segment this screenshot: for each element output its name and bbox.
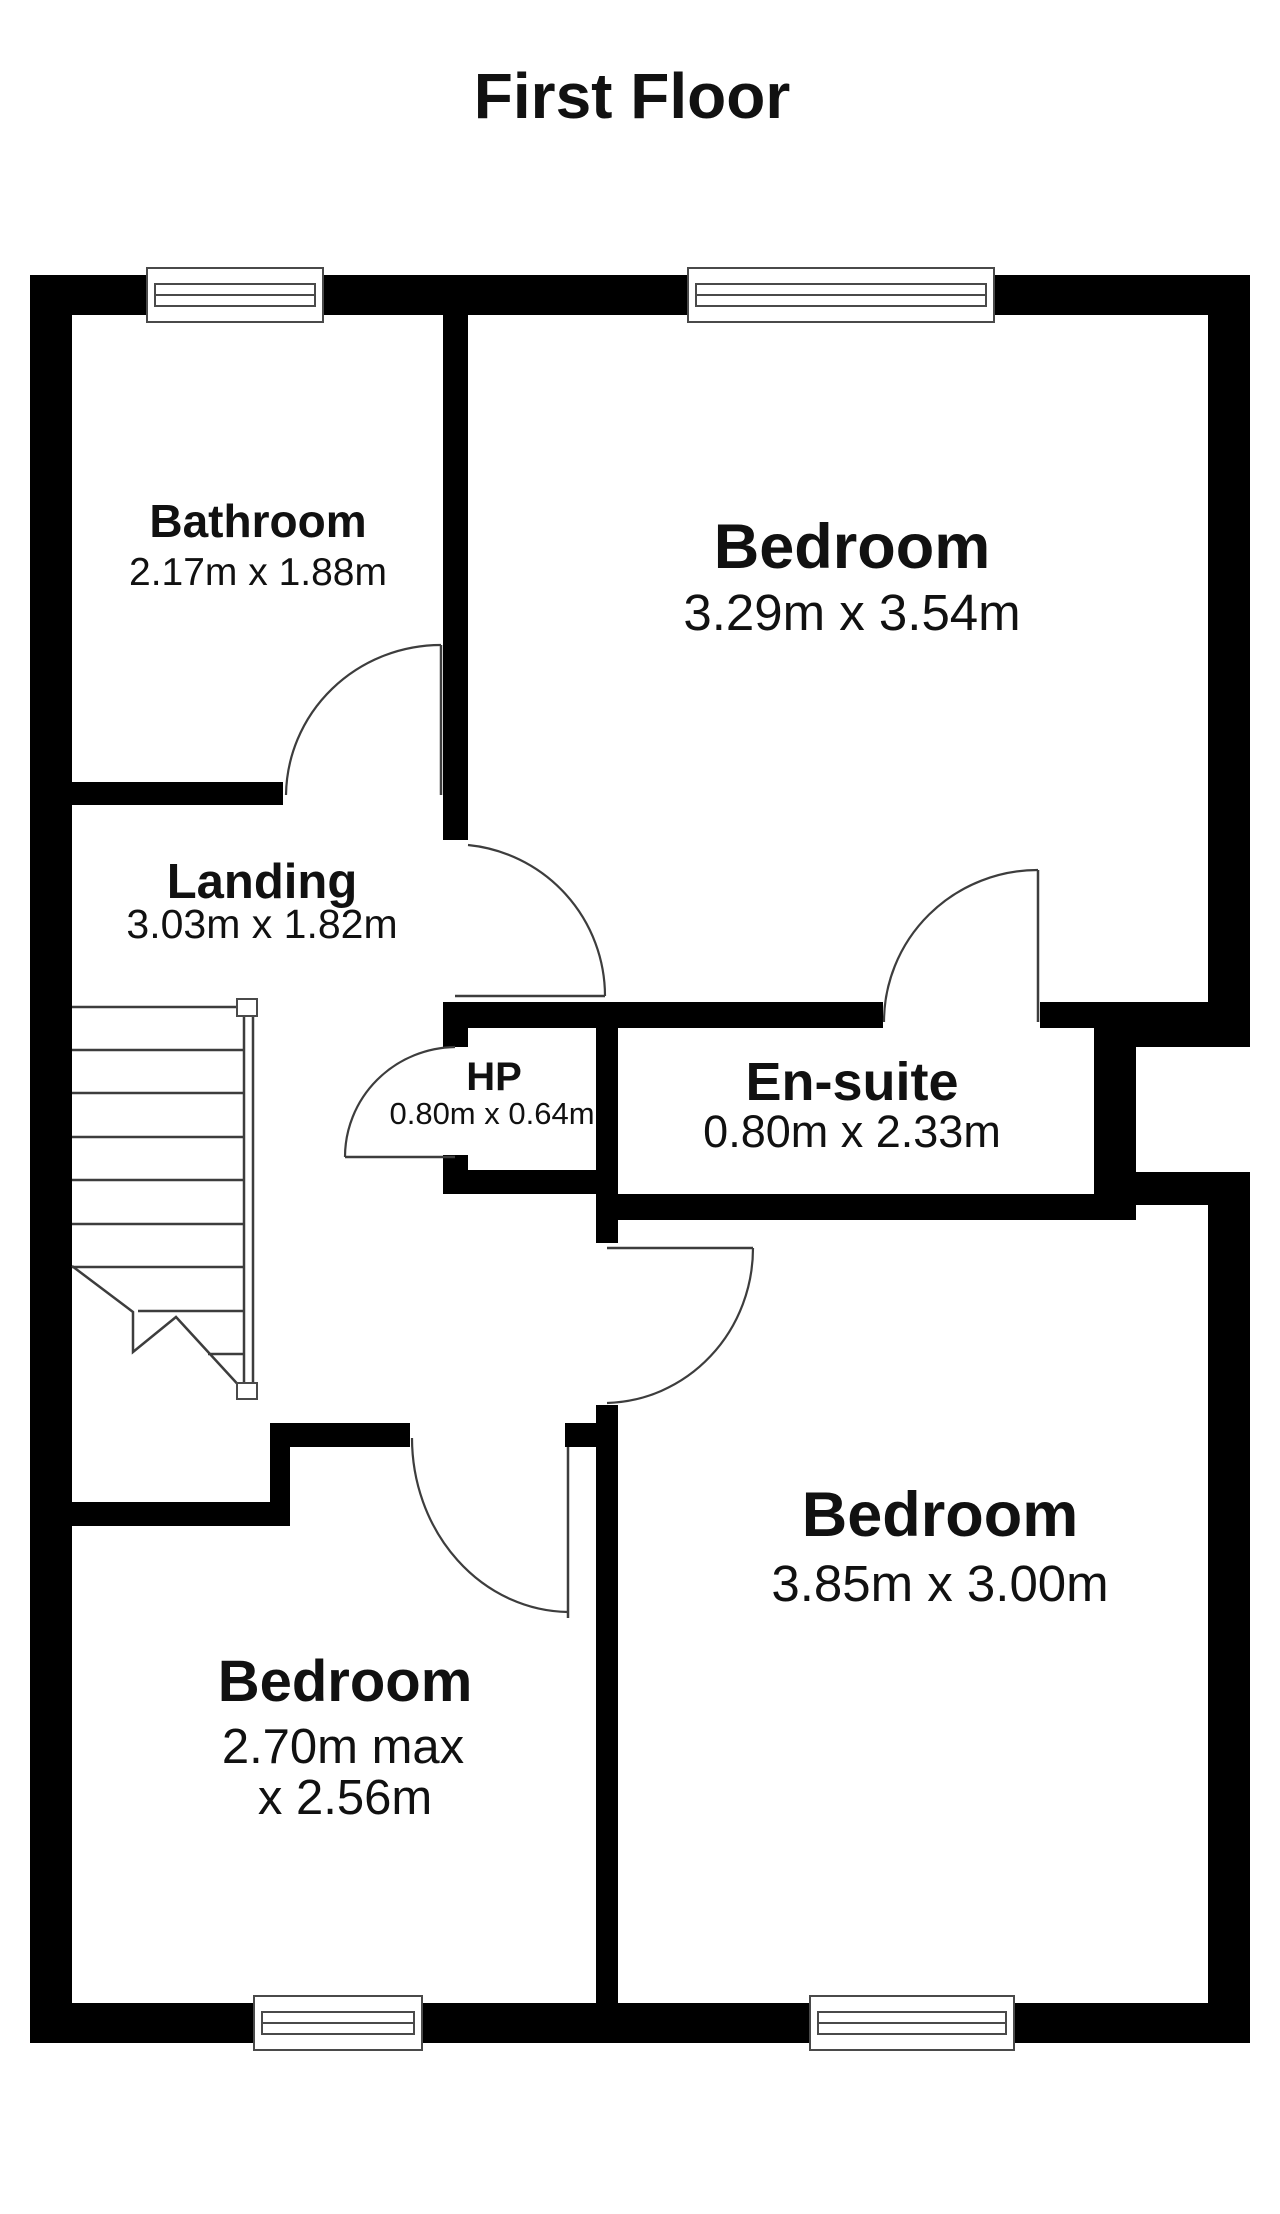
plan-background [0,0,1280,2214]
room-dims: x 2.56m [258,1771,432,1825]
wall-ensuite-bottom [596,1194,1136,1220]
room-label-landing: Landing 3.03m x 1.82m [126,855,397,947]
window-symbol-bottom-left [254,1996,422,2050]
room-dims: 2.70m max [222,1720,464,1774]
wall-outer-left [30,275,72,2043]
wall-notch-bottom [1136,1172,1250,1205]
room-dims: 0.80m x 2.33m [703,1106,1001,1157]
wall-hp-left-top-stub [443,1028,468,1047]
wall-bathroom-bottom [72,782,283,805]
page-title: First Floor [474,60,790,132]
room-name: Bathroom [149,495,366,547]
wall-outer-right-upper [1208,275,1250,1047]
wall-jog-layer [1094,1028,1250,1047]
room-dims: 0.80m x 0.64m [389,1096,594,1131]
window-symbol-top-left [147,268,323,322]
stair-newel-bottom [237,1383,257,1399]
room-name: Bedroom [218,1649,473,1714]
wall-center-divider-lower [596,1405,618,2003]
wall-center-divider-upper [596,1002,618,1243]
room-dims: 3.03m x 1.82m [126,901,397,947]
room-label-bedroom-bottom-right: Bedroom 3.85m x 3.00m [771,1480,1108,1612]
wall-bl-bedroom-top-upper [270,1423,410,1447]
room-label-ensuite: En-suite 0.80m x 2.33m [703,1052,1001,1157]
window-symbol-bottom-right [810,1996,1014,2050]
wall-bl-bedroom-top-lower [30,1502,290,1526]
room-name: HP [466,1055,522,1099]
wall-jog-vertical [1094,1047,1136,1205]
wall-bedroom-bottom-right-part [1040,1002,1208,1028]
room-dims: 3.29m x 3.54m [683,584,1020,641]
room-name: En-suite [745,1052,958,1112]
floor-plan-svg: First Floor [0,0,1280,2214]
room-dims: 2.17m x 1.88m [129,551,387,594]
wall-bathroom-bedroom-divider [443,315,468,840]
room-label-bedroom-top-right: Bedroom 3.29m x 3.54m [683,512,1020,641]
wall-hp-bottom [443,1170,618,1194]
room-name: Bedroom [802,1480,1079,1550]
wall-bl-bedroom-top-stub [565,1423,618,1447]
stair-newel-top [237,999,257,1016]
wall-bedroom-bottom-left-part [443,1002,883,1028]
room-name: Bedroom [714,512,991,582]
window-symbol-top-right [688,268,994,322]
wall-outer-right-lower [1208,1172,1250,2043]
wall-outer-bottom [30,2003,1250,2043]
room-dims: 3.85m x 3.00m [771,1555,1108,1612]
room-label-bathroom: Bathroom 2.17m x 1.88m [129,495,387,594]
